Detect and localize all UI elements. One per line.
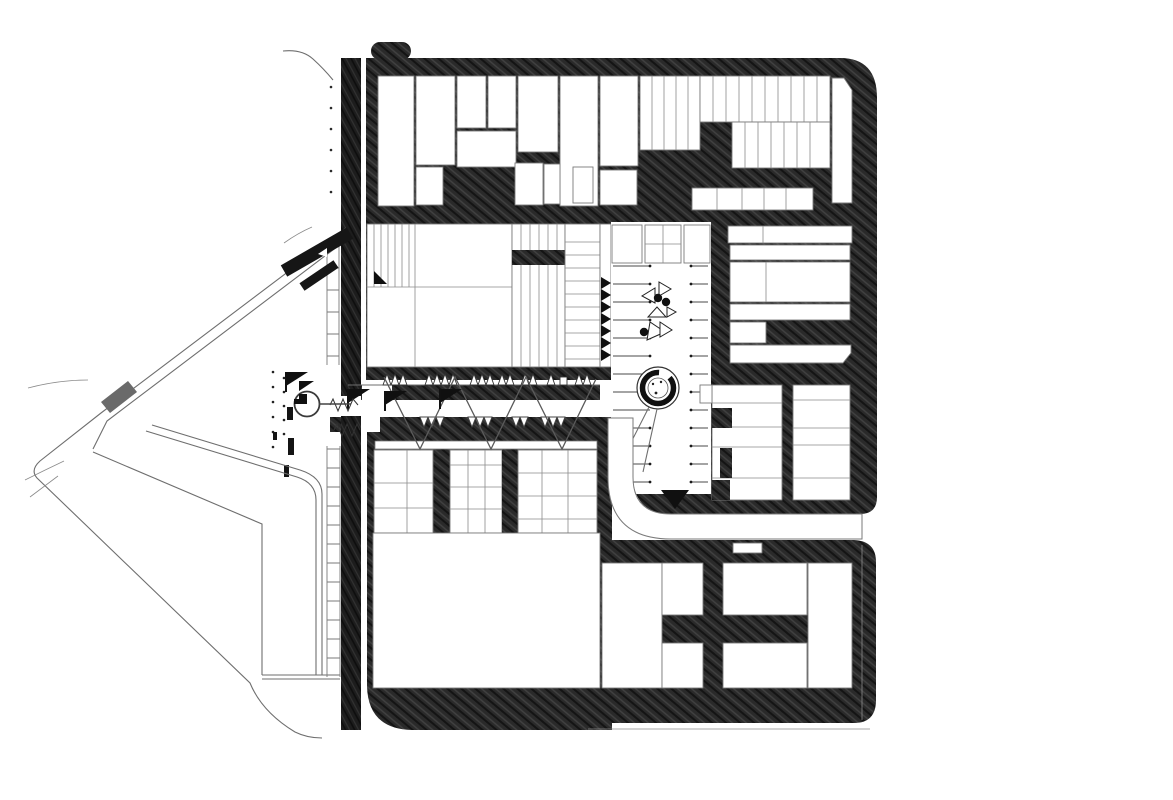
sculpture-dot	[640, 328, 648, 336]
building-lot	[378, 76, 414, 206]
court	[662, 643, 703, 688]
court	[730, 245, 850, 260]
building-lot-chamfered	[832, 78, 852, 203]
court	[808, 563, 852, 688]
building-lot	[416, 167, 443, 205]
court	[602, 563, 662, 688]
slab-entry	[700, 385, 712, 403]
north-block-ear	[371, 42, 411, 60]
party-wall	[435, 450, 450, 533]
slab-notch	[712, 408, 732, 428]
court	[662, 563, 703, 615]
market-hall	[367, 224, 512, 367]
party-wall	[502, 450, 518, 533]
building-lot	[416, 76, 455, 165]
building-lot	[457, 76, 486, 128]
slab-building	[793, 385, 850, 500]
building-lot	[457, 131, 516, 167]
great-hall	[373, 533, 600, 688]
slab-notch	[712, 480, 730, 500]
arcade-building	[565, 224, 600, 367]
court	[728, 226, 852, 243]
row-cells	[374, 450, 433, 533]
row-cells	[518, 450, 597, 533]
building-lot	[488, 76, 516, 128]
site-plan-drawing: architectural site plan (figure-ground)	[0, 0, 1173, 800]
kiosk	[684, 225, 710, 263]
court	[730, 262, 850, 302]
central-block-buildings	[367, 224, 611, 367]
southwest-block-buildings	[373, 441, 600, 688]
kiosk	[612, 225, 642, 263]
building-lot	[515, 163, 543, 205]
gate-notch	[733, 543, 762, 553]
court	[730, 322, 766, 343]
building-lot	[544, 164, 560, 204]
building-lot	[600, 76, 638, 166]
court	[730, 304, 850, 320]
building-lot	[600, 170, 637, 205]
court	[723, 563, 807, 615]
row-cells	[450, 450, 502, 533]
sculpture-dot	[654, 294, 662, 302]
fountain	[637, 367, 679, 409]
building-lot	[518, 76, 558, 152]
canopy-strip-a2	[392, 385, 600, 400]
sculpture-dot	[662, 298, 670, 306]
canopy-strip-b-gap	[358, 417, 380, 432]
gallery-crossbar	[512, 250, 565, 265]
slab-notch	[720, 448, 732, 478]
building-lot	[573, 167, 593, 203]
court	[723, 643, 807, 688]
court-chamfered	[730, 345, 851, 363]
site-plan-canvas: architectural site plan (figure-ground)	[0, 0, 1173, 800]
